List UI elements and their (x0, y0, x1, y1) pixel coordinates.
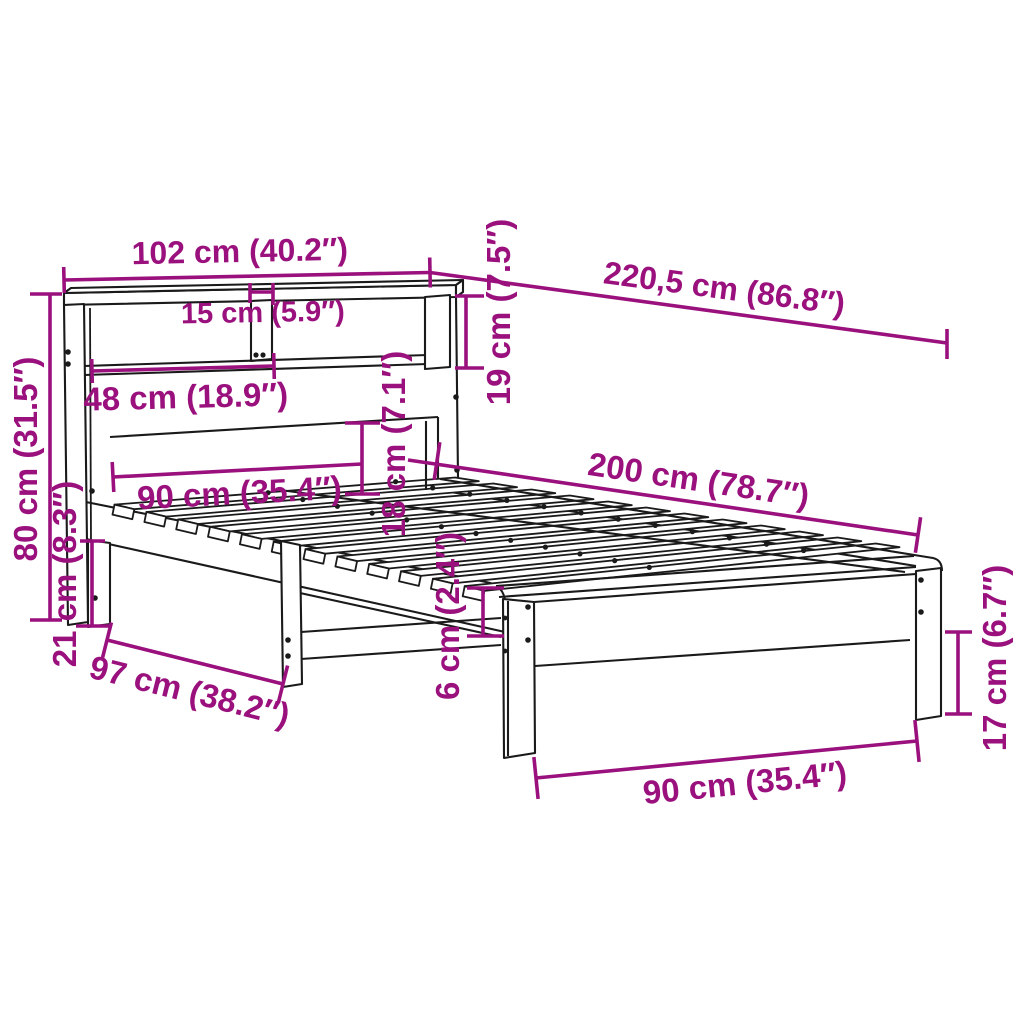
svg-text:6 cm (2.4″): 6 cm (2.4″) (429, 532, 466, 700)
svg-text:102 cm (40.2″): 102 cm (40.2″) (131, 231, 348, 272)
svg-text:15 cm (5.9″): 15 cm (5.9″) (181, 296, 345, 331)
svg-text:18 cm (7.1″): 18 cm (7.1″) (375, 351, 412, 537)
svg-text:48 cm (18.9″): 48 cm (18.9″) (83, 375, 289, 417)
svg-text:21 cm (8.3″): 21 cm (8.3″) (46, 481, 83, 667)
svg-text:17 cm (6.7″): 17 cm (6.7″) (976, 565, 1013, 751)
svg-text:90 cm (35.4″): 90 cm (35.4″) (641, 754, 848, 811)
svg-text:80 cm (31.5″): 80 cm (31.5″) (7, 357, 44, 562)
svg-text:19 cm (7.5″): 19 cm (7.5″) (480, 219, 517, 405)
